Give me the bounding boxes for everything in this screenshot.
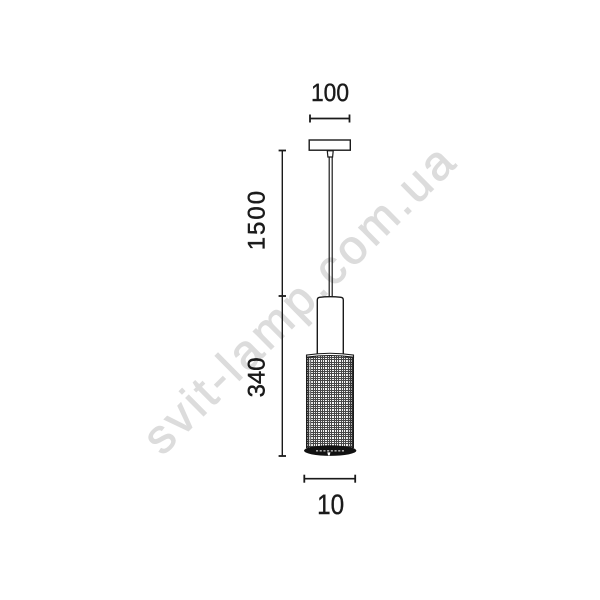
svg-text:1500: 1500 bbox=[244, 189, 271, 250]
svg-text:10: 10 bbox=[317, 489, 344, 520]
svg-text:svit-lamp.com.ua: svit-lamp.com.ua bbox=[133, 133, 468, 464]
svg-text:100: 100 bbox=[311, 79, 349, 107]
svg-text:340: 340 bbox=[244, 357, 271, 397]
